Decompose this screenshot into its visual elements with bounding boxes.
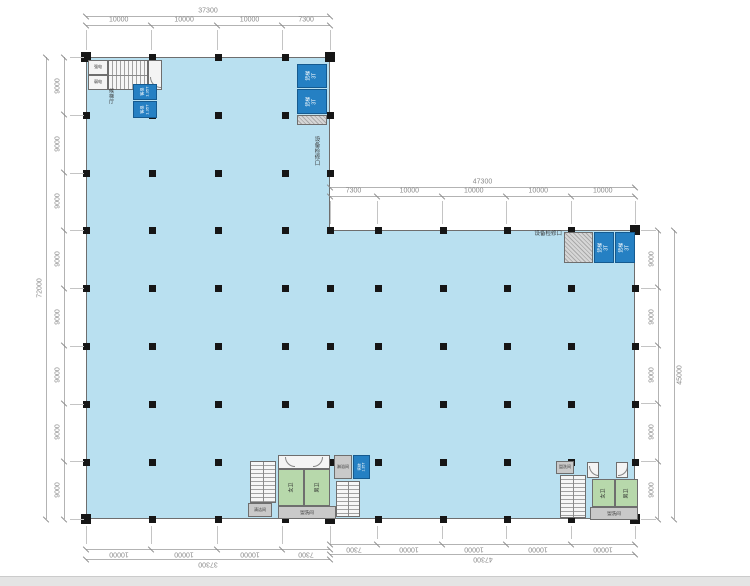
dimension-label: 37300 — [198, 8, 217, 15]
column-marker — [504, 285, 511, 292]
toilet-lobby — [278, 455, 330, 469]
dimension-extension — [641, 403, 656, 404]
passenger-elevator: 客梯 1.35T — [133, 101, 157, 118]
toilet-male-room: 男卫 — [615, 479, 638, 507]
dimension-label: 9000 — [649, 251, 656, 267]
shower-room: 淋浴间 — [334, 455, 352, 479]
dimension-label: 7300 — [298, 551, 314, 558]
dimension-extension — [506, 526, 507, 539]
stairs-bottom-right — [560, 475, 586, 518]
washroom-label: 盥洗间 — [559, 465, 571, 469]
column-marker — [282, 343, 289, 350]
dimension-label: 45000 — [677, 365, 684, 384]
weak-power-room: 弱电 — [88, 75, 108, 90]
dimension-extension — [70, 461, 84, 462]
column-marker — [325, 52, 335, 62]
dimension-label: 10000 — [464, 546, 483, 553]
column-marker — [632, 459, 639, 466]
column-marker — [282, 54, 289, 61]
service-room — [564, 232, 593, 263]
dimension-label: 47300 — [473, 179, 492, 186]
dimension-extension — [70, 115, 84, 116]
service-shaft — [297, 115, 327, 125]
column-marker — [327, 112, 334, 119]
dimension-label: 10000 — [109, 17, 128, 24]
dimension-label: 9000 — [55, 425, 62, 441]
dimension-label: 10000 — [174, 17, 193, 24]
column-marker — [282, 112, 289, 119]
elevator-lobby-label: 候梯厅 — [108, 88, 113, 105]
column-marker — [215, 459, 222, 466]
column-marker — [282, 401, 289, 408]
dimension-extension — [70, 288, 84, 289]
dimension-extension — [70, 346, 84, 347]
dimension-extension — [70, 519, 84, 520]
column-marker — [149, 459, 156, 466]
dimension-extension — [641, 461, 656, 462]
dimension-extension — [70, 404, 84, 405]
column-marker — [215, 285, 222, 292]
dimension-extension — [70, 173, 84, 174]
dimension-label: 9000 — [55, 251, 62, 267]
dimension-extension — [217, 30, 218, 50]
dimension-label: 10000 — [174, 551, 193, 558]
column-marker — [440, 516, 447, 523]
column-marker — [440, 227, 447, 234]
dimension-extension — [151, 30, 152, 50]
dimension-extension — [635, 201, 636, 224]
column-marker — [504, 227, 511, 234]
dimension-extension — [442, 201, 443, 224]
washroom-label: 盥洗间 — [607, 511, 621, 517]
dimension-label: 10000 — [529, 546, 548, 553]
dimension-extension — [151, 526, 152, 544]
dimension-label: 9000 — [55, 482, 62, 498]
freight-elevator-label: 货梯 3T — [598, 242, 610, 252]
column-marker — [568, 401, 575, 408]
bottom-strip — [0, 576, 750, 586]
column-marker — [282, 285, 289, 292]
column-marker — [215, 516, 222, 523]
column-marker — [149, 343, 156, 350]
column-marker — [149, 401, 156, 408]
column-marker — [327, 170, 334, 177]
column-marker — [504, 401, 511, 408]
column-marker — [504, 516, 511, 523]
freight-elevator: 货梯 3T — [594, 232, 614, 263]
column-marker — [149, 170, 156, 177]
column-marker — [215, 401, 222, 408]
column-marker — [327, 285, 334, 292]
dimension-extension — [641, 519, 656, 520]
column-marker — [440, 343, 447, 350]
column-marker — [632, 401, 639, 408]
dimension-extension — [442, 526, 443, 539]
passenger-elevator-label: 客梯 1.35T — [357, 463, 365, 472]
dimension-label: 7300 — [346, 546, 362, 553]
dimension-label: 72000 — [37, 278, 44, 297]
left-wing-floor — [86, 57, 330, 519]
dimension-extension — [86, 526, 87, 544]
toilet-female-label: 女卫 — [287, 482, 294, 492]
freight-elevator-label: 货梯 3T — [306, 71, 318, 81]
dimension-label: 10000 — [593, 188, 612, 195]
column-marker — [282, 227, 289, 234]
dimension-extension — [70, 230, 84, 231]
dimension-label: 9000 — [55, 309, 62, 325]
column-marker — [632, 343, 639, 350]
freight-elevator: 货梯 3T — [297, 64, 327, 88]
equipment-access-label: 设备检修口 — [518, 229, 562, 237]
column-marker — [375, 516, 382, 523]
column-marker — [375, 227, 382, 234]
toilet-female-room: 女卫 — [592, 479, 615, 507]
shower-room-label: 淋浴间 — [337, 465, 349, 469]
dimension-label: 9000 — [55, 367, 62, 383]
dimension-label: 7300 — [346, 188, 362, 195]
weak-power-label: 弱电 — [94, 80, 102, 84]
washroom-label: 盥洗间 — [300, 510, 314, 516]
column-marker — [149, 227, 156, 234]
dimension-label: 10000 — [400, 546, 419, 553]
dimension-label: 9000 — [55, 136, 62, 152]
dimension-label: 10000 — [400, 188, 419, 195]
cleaning-room-label: 清洁间 — [254, 508, 266, 512]
dimension-extension — [641, 230, 656, 231]
column-marker — [215, 170, 222, 177]
dimension-label: 9000 — [649, 309, 656, 325]
floor-plan-canvas: 强电 弱电 候梯厅 客梯 1.35T 客梯 1.35T 货梯 3T 货梯 3T … — [0, 0, 750, 586]
dimension-extension — [282, 30, 283, 50]
dimension-label: 47300 — [473, 556, 492, 563]
dimension-label: 10000 — [464, 188, 483, 195]
washroom-corridor: 盥洗间 — [590, 507, 638, 520]
toilet-lobby — [616, 462, 628, 478]
column-marker — [375, 343, 382, 350]
column-marker — [327, 343, 334, 350]
dimension-extension — [282, 526, 283, 544]
column-marker — [375, 285, 382, 292]
door-swing-icon — [589, 466, 599, 476]
column-marker — [327, 401, 334, 408]
dimension-extension — [330, 201, 331, 224]
dimension-extension — [70, 57, 84, 58]
toilet-male-room: 男卫 — [304, 469, 330, 506]
dimension-line — [46, 57, 47, 519]
strong-power-label: 强电 — [94, 65, 102, 69]
stairs-right-wing-west — [336, 481, 360, 517]
column-marker — [327, 227, 334, 234]
column-marker — [375, 459, 382, 466]
toilet-lobby — [587, 462, 599, 478]
door-swing-icon — [285, 457, 295, 467]
dimension-extension — [635, 526, 636, 539]
washroom-corridor: 盥洗间 — [278, 506, 336, 519]
freight-elevator: 货梯 3T — [615, 232, 635, 263]
column-marker — [375, 401, 382, 408]
dimension-extension — [217, 526, 218, 544]
dimension-label: 10000 — [240, 551, 259, 558]
dimension-extension — [330, 526, 331, 539]
dimension-label: 10000 — [529, 188, 548, 195]
column-marker — [568, 285, 575, 292]
stairs-bottom-middle — [250, 461, 276, 503]
column-marker — [282, 170, 289, 177]
dimension-extension — [641, 346, 656, 347]
column-marker — [440, 285, 447, 292]
equipment-access-label: 设备检修口 — [313, 136, 319, 166]
dimension-label: 10000 — [593, 546, 612, 553]
dimension-label: 7300 — [298, 17, 314, 24]
toilet-female-label: 女卫 — [600, 488, 607, 498]
dimension-line — [674, 230, 675, 519]
dimension-extension — [86, 30, 87, 50]
freight-elevator-label: 货梯 3T — [619, 242, 631, 252]
door-swing-icon — [618, 466, 628, 476]
toilet-female-room: 女卫 — [278, 469, 304, 506]
toilet-male-label: 男卫 — [313, 482, 320, 492]
column-marker — [504, 343, 511, 350]
passenger-elevator: 客梯 1.35T — [133, 84, 157, 100]
column-marker — [215, 54, 222, 61]
dimension-line — [86, 25, 330, 26]
column-marker — [568, 343, 575, 350]
dimension-extension — [377, 526, 378, 539]
column-marker — [215, 227, 222, 234]
door-swing-icon — [313, 457, 323, 467]
column-marker — [149, 516, 156, 523]
column-marker — [215, 112, 222, 119]
toilet-male-label: 男卫 — [623, 488, 630, 498]
passenger-elevator-label: 客梯 1.35T — [140, 104, 149, 114]
dimension-label: 37300 — [198, 561, 217, 568]
column-marker — [440, 459, 447, 466]
column-marker — [215, 343, 222, 350]
dimension-label: 9000 — [649, 482, 656, 498]
dimension-extension — [571, 201, 572, 224]
dimension-label: 10000 — [240, 17, 259, 24]
dimension-extension — [377, 201, 378, 224]
cleaning-room: 清洁间 — [248, 503, 272, 517]
dimension-label: 9000 — [55, 194, 62, 210]
column-marker — [149, 285, 156, 292]
passenger-elevator: 客梯 1.35T — [353, 455, 370, 479]
dimension-label: 10000 — [109, 551, 128, 558]
freight-elevator: 货梯 3T — [297, 89, 327, 114]
column-marker — [632, 285, 639, 292]
column-marker — [504, 459, 511, 466]
passenger-elevator-label: 客梯 1.35T — [140, 87, 149, 97]
dimension-extension — [641, 288, 656, 289]
dimension-extension — [571, 526, 572, 539]
column-marker — [440, 401, 447, 408]
dimension-label: 9000 — [55, 78, 62, 94]
washroom-small: 盥洗间 — [556, 461, 574, 474]
dimension-extension — [506, 201, 507, 224]
dimension-label: 9000 — [649, 367, 656, 383]
dimension-line — [658, 230, 659, 519]
freight-elevator-label: 货梯 3T — [306, 96, 318, 106]
strong-power-room: 强电 — [88, 60, 108, 75]
dimension-extension — [330, 30, 331, 50]
dimension-label: 9000 — [649, 425, 656, 441]
